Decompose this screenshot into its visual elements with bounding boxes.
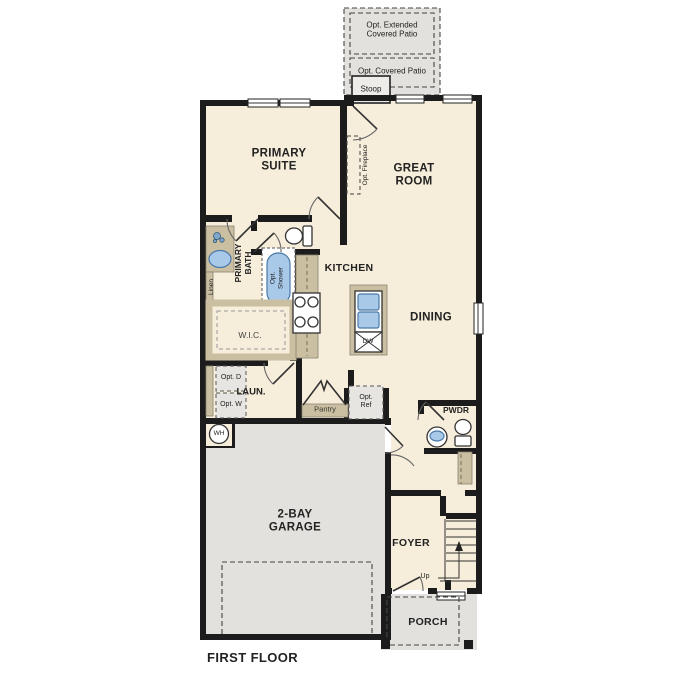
porch-post bbox=[464, 640, 473, 649]
porch-label: PORCH bbox=[398, 616, 458, 628]
linen-label: Linen bbox=[208, 272, 216, 302]
powder-toilet-bowl-icon bbox=[455, 420, 471, 435]
wall-segment bbox=[476, 95, 482, 594]
wall-segment bbox=[340, 101, 347, 245]
primary-bath-label: PRIMARY BATH bbox=[234, 235, 254, 291]
great-room-label: GREAT ROOM bbox=[384, 163, 444, 190]
wall-segment bbox=[388, 490, 441, 496]
opt-shower-label: Opt. Shower bbox=[269, 261, 284, 295]
wall-segment bbox=[206, 360, 268, 366]
floor-plan-drawing bbox=[0, 0, 687, 687]
powder-sink-basin-icon bbox=[430, 431, 444, 441]
laundry-shelf bbox=[206, 366, 213, 416]
wall-segment bbox=[206, 215, 232, 222]
bath-sink-icon bbox=[209, 251, 231, 268]
kitchen-label: KITCHEN bbox=[314, 262, 384, 274]
powder-toilet-tank-icon bbox=[455, 436, 471, 446]
powder-label: PWDR bbox=[434, 406, 478, 416]
water-heater-label: WH bbox=[207, 430, 231, 438]
porch-post bbox=[381, 640, 390, 649]
wic-label: W.I.C. bbox=[225, 331, 275, 341]
wall-segment bbox=[258, 215, 312, 222]
opt-fireplace-label: Opt. Fireplace bbox=[362, 130, 370, 200]
floor-plan: Opt. Extended Covered Patio Opt. Covered… bbox=[0, 0, 687, 687]
opt-covered-patio-label: Opt. Covered Patio bbox=[337, 66, 447, 75]
opt-fireplace-outline bbox=[347, 136, 360, 194]
opt-washer-label: Opt. W bbox=[219, 401, 243, 409]
wall-segment bbox=[446, 513, 482, 519]
burner-icon bbox=[295, 297, 305, 307]
burner-icon bbox=[308, 317, 318, 327]
first-floor-title: FIRST FLOOR bbox=[207, 650, 347, 665]
toilet-tank-icon bbox=[303, 226, 312, 246]
wall-segment bbox=[381, 594, 386, 640]
sink-basin-icon bbox=[358, 294, 379, 310]
wall-segment bbox=[424, 448, 482, 454]
sink-basin-icon bbox=[358, 312, 379, 328]
wall-segment bbox=[200, 634, 391, 640]
opt-ref-label: Opt. Ref bbox=[353, 394, 379, 410]
dishwasher-label: DW bbox=[358, 338, 378, 346]
opt-dryer-label: Opt. D bbox=[219, 374, 243, 382]
wall-segment bbox=[383, 388, 389, 418]
wall-segment bbox=[465, 490, 482, 496]
coat-closet-shelf bbox=[458, 452, 472, 484]
foyer-label: FOYER bbox=[381, 537, 441, 549]
up-label: Up bbox=[415, 573, 435, 581]
wall-segment bbox=[428, 588, 437, 594]
wall-segment bbox=[440, 496, 446, 516]
wall-segment bbox=[200, 100, 206, 640]
wall-segment bbox=[385, 418, 391, 425]
wall-segment bbox=[296, 358, 302, 422]
opt-extended-patio-label: Opt. Extended Covered Patio bbox=[360, 21, 424, 40]
burner-icon bbox=[308, 297, 318, 307]
pantry-label: Pantry bbox=[303, 406, 347, 415]
wall-segment bbox=[467, 588, 482, 594]
laundry-label: LAUN. bbox=[229, 386, 273, 397]
dining-label: DINING bbox=[396, 311, 466, 324]
garage-label: 2-BAY GARAGE bbox=[255, 509, 335, 536]
toilet-bowl-icon bbox=[286, 228, 303, 244]
primary-suite-label: PRIMARY SUITE bbox=[241, 148, 317, 175]
stoop-label: Stoop bbox=[351, 84, 391, 93]
burner-icon bbox=[295, 317, 305, 327]
